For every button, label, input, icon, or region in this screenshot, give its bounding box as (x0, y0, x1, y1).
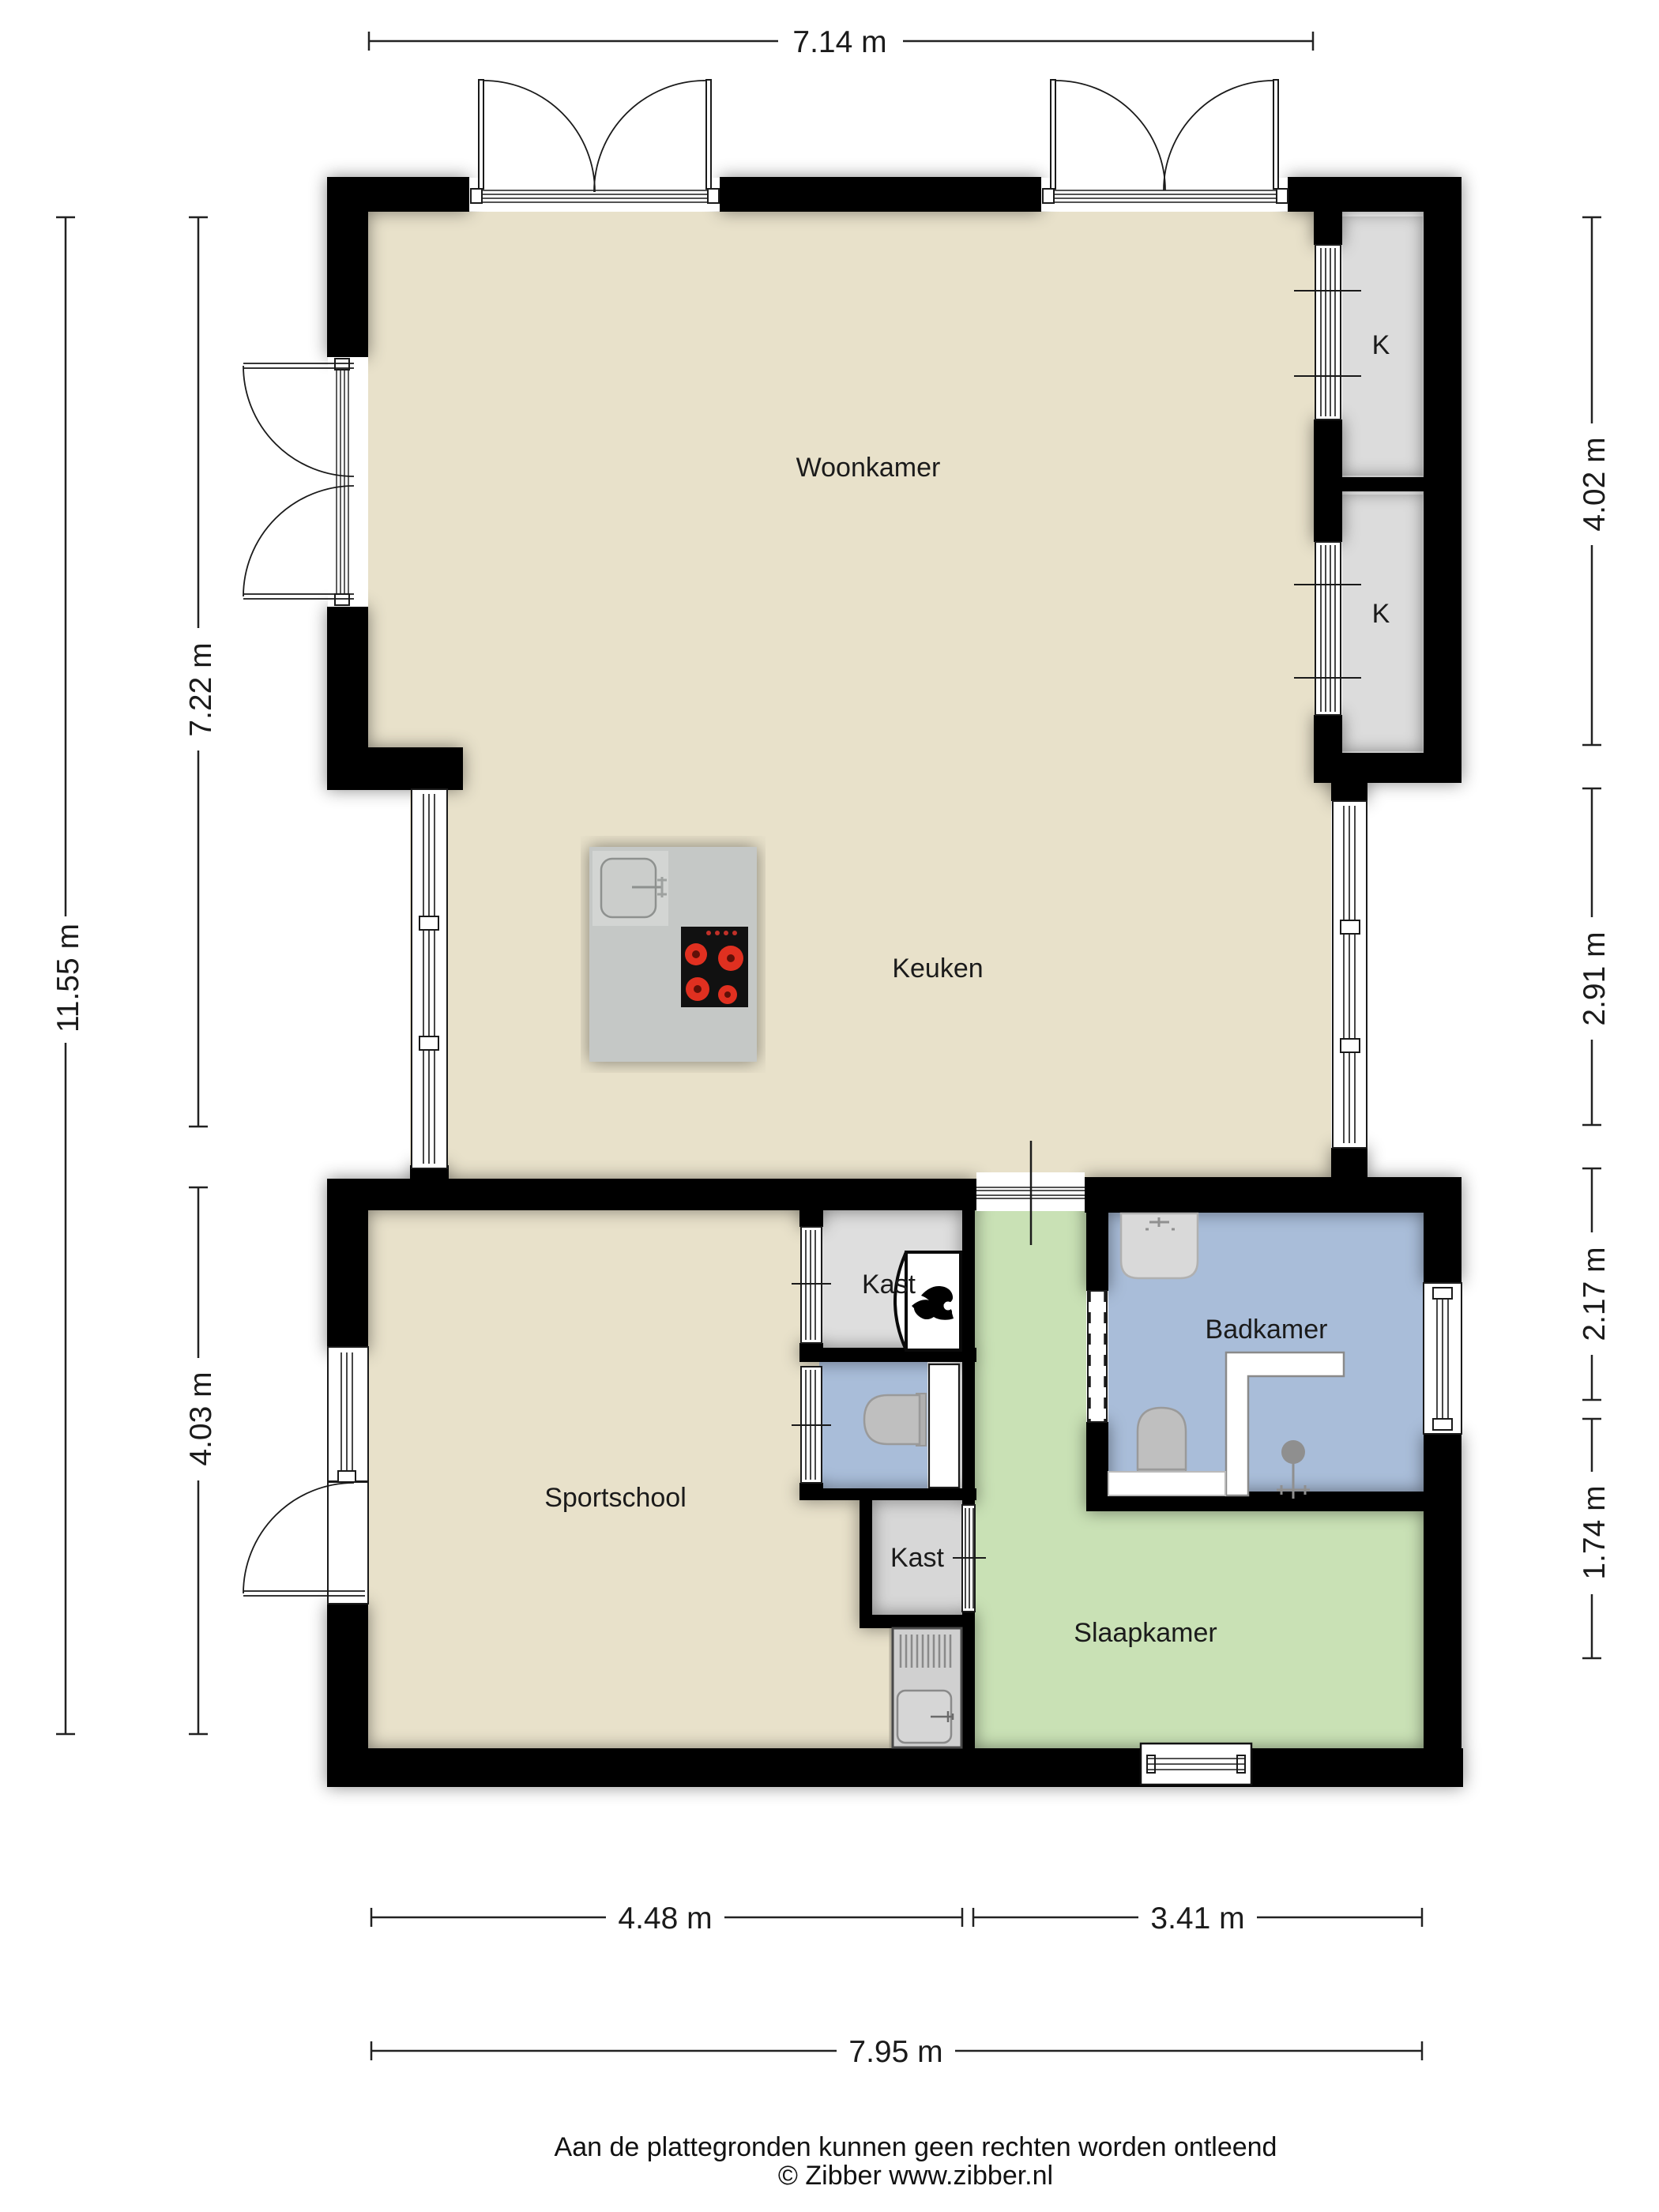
svg-text:Slaapkamer: Slaapkamer (1074, 1618, 1217, 1648)
svg-text:K: K (1372, 330, 1390, 360)
svg-text:2.91 m: 2.91 m (1578, 931, 1612, 1025)
svg-text:Woonkamer: Woonkamer (796, 453, 941, 483)
svg-text:© Zibber www.zibber.nl: © Zibber www.zibber.nl (778, 2161, 1053, 2191)
svg-text:Kast: Kast (862, 1270, 916, 1300)
svg-text:7.14 m: 7.14 m (792, 25, 886, 59)
svg-text:Badkamer: Badkamer (1206, 1315, 1328, 1345)
svg-text:Kast: Kast (890, 1543, 945, 1573)
svg-text:7.95 m: 7.95 m (848, 2035, 942, 2069)
svg-text:4.02 m: 4.02 m (1578, 437, 1612, 531)
svg-text:K: K (1372, 599, 1390, 629)
svg-text:4.03 m: 4.03 m (184, 1371, 218, 1465)
svg-text:2.17 m: 2.17 m (1578, 1247, 1612, 1341)
svg-text:4.48 m: 4.48 m (618, 1902, 712, 1935)
svg-text:3.41 m: 3.41 m (1150, 1902, 1244, 1935)
svg-text:1.74 m: 1.74 m (1578, 1485, 1612, 1579)
svg-text:11.55 m: 11.55 m (51, 924, 85, 1033)
svg-text:Keuken: Keuken (892, 954, 983, 984)
svg-text:7.22 m: 7.22 m (184, 642, 218, 736)
svg-text:Sportschool: Sportschool (544, 1483, 687, 1513)
svg-text:Aan de plattegronden kunnen ge: Aan de plattegronden kunnen geen rechten… (555, 2132, 1277, 2162)
